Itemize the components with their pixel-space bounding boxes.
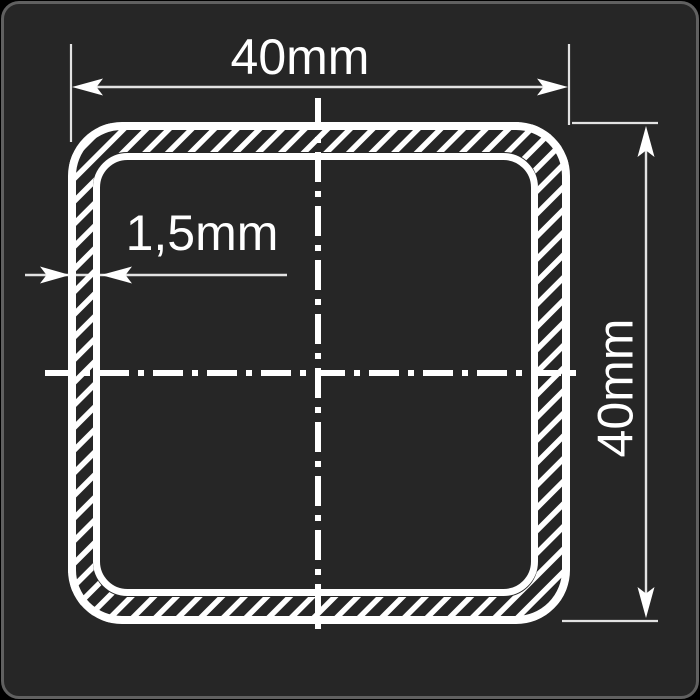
tube-section	[68, 122, 570, 624]
thickness-dimension-label: 1,5mm	[123, 206, 281, 261]
height-dimension-label: 40mm	[589, 319, 644, 458]
width-dimension-label: 40mm	[230, 30, 370, 85]
wall-hatch	[68, 122, 570, 624]
screenshot-stage: 40mm 1,5mm 40mm	[0, 0, 700, 700]
